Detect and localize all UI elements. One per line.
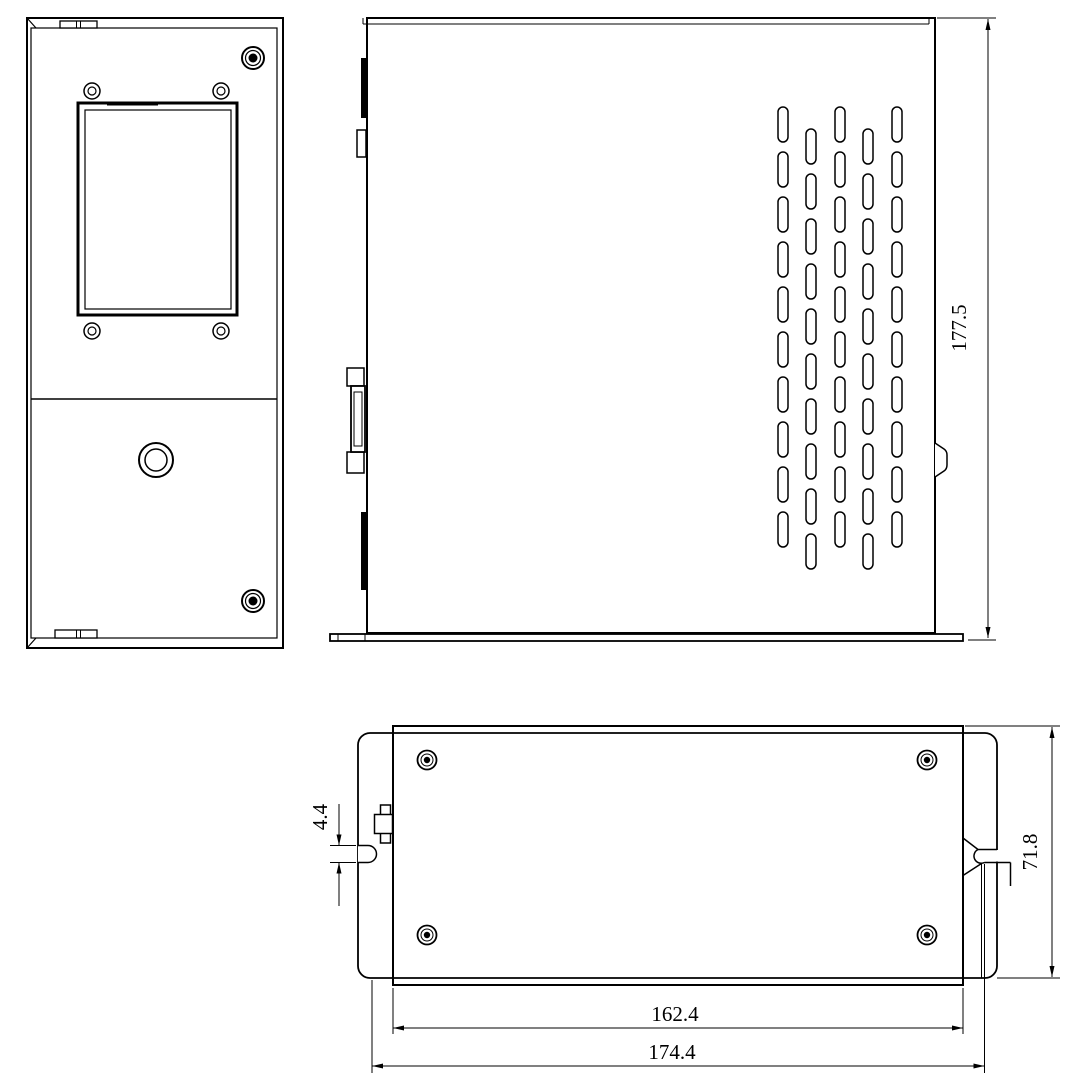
base-screw-top-left bbox=[418, 751, 437, 770]
vent-slot bbox=[863, 444, 873, 479]
din-connector-body bbox=[351, 386, 365, 452]
display-screw-bottom-left bbox=[84, 323, 100, 339]
vent-slot bbox=[863, 399, 873, 434]
vent-slot bbox=[835, 512, 845, 547]
vent-slot bbox=[892, 242, 902, 277]
vent-slot bbox=[806, 354, 816, 389]
vent-slot bbox=[806, 129, 816, 164]
drawing-canvas: 177.5 71.8 4.4 162.4 bbox=[0, 0, 1080, 1087]
vent-slot bbox=[835, 152, 845, 187]
dim-overall-width-label: 174.4 bbox=[648, 1040, 696, 1064]
panel-screw-bottom-right bbox=[242, 590, 264, 612]
vent-slot bbox=[892, 422, 902, 457]
vent-slot bbox=[863, 354, 873, 389]
display-screw-top-left bbox=[84, 83, 100, 99]
display-screw-bottom-right bbox=[213, 323, 229, 339]
vent-slot bbox=[778, 377, 788, 412]
side-body-outline bbox=[367, 18, 935, 633]
vent-slot bbox=[835, 287, 845, 322]
vent-slot bbox=[892, 377, 902, 412]
vent-slot bbox=[835, 107, 845, 142]
side-left-rib-top bbox=[361, 58, 366, 118]
vent-slot bbox=[863, 129, 873, 164]
dim-side-height-label: 177.5 bbox=[947, 304, 971, 351]
bottom-view bbox=[358, 726, 1011, 985]
vent-slot bbox=[835, 332, 845, 367]
vent-slot bbox=[778, 242, 788, 277]
dim-overall-width: 174.4 bbox=[372, 864, 985, 1073]
base-screw-bottom-left bbox=[418, 926, 437, 945]
vent-slot bbox=[863, 174, 873, 209]
vent-slot bbox=[892, 197, 902, 232]
display-screw-top-right bbox=[213, 83, 229, 99]
bottom-connector bbox=[375, 805, 393, 843]
vent-slot bbox=[778, 467, 788, 502]
dim-body-width: 162.4 bbox=[393, 988, 963, 1034]
dim-slot-height-label: 4.4 bbox=[308, 803, 332, 830]
vent-slot bbox=[835, 242, 845, 277]
vent-slot bbox=[806, 174, 816, 209]
vent-slot bbox=[835, 467, 845, 502]
base-screw-top-right bbox=[918, 751, 937, 770]
front-bottom-hinge bbox=[55, 630, 97, 638]
front-top-hinge bbox=[60, 21, 97, 28]
dim-side-height: 177.5 bbox=[937, 18, 996, 640]
vent-slot bbox=[892, 332, 902, 367]
vent-slot bbox=[863, 489, 873, 524]
dimensions: 177.5 71.8 4.4 162.4 bbox=[308, 18, 1060, 1073]
vent-slot bbox=[778, 197, 788, 232]
vent-slot bbox=[892, 512, 902, 547]
mounting-flange-outline bbox=[358, 733, 997, 978]
panel-screw-top-right bbox=[242, 47, 264, 69]
front-outer-outline bbox=[27, 18, 283, 648]
vent-slot bbox=[892, 467, 902, 502]
dim-flange-height: 71.8 bbox=[965, 726, 1060, 978]
vent-slot bbox=[806, 309, 816, 344]
vent-slot bbox=[806, 444, 816, 479]
vent-slot bbox=[863, 534, 873, 569]
vent-slot bbox=[778, 107, 788, 142]
connector-mount-tab-top bbox=[347, 368, 364, 386]
vent-slot bbox=[892, 152, 902, 187]
base-screw-bottom-right bbox=[918, 926, 937, 945]
side-left-rib-bottom bbox=[361, 512, 366, 590]
power-knob bbox=[139, 443, 173, 477]
vent-slot bbox=[778, 287, 788, 322]
dim-body-width-label: 162.4 bbox=[651, 1002, 699, 1026]
vent-slot bbox=[778, 152, 788, 187]
vent-slot bbox=[806, 264, 816, 299]
vent-slot bbox=[806, 219, 816, 254]
vent-slot bbox=[778, 332, 788, 367]
connector-mount-tab-bottom bbox=[347, 452, 364, 473]
front-inner-outline bbox=[31, 28, 277, 638]
front-corner-chamfer-bottom bbox=[27, 638, 36, 648]
side-left-switch bbox=[357, 130, 366, 157]
side-bottom-flange bbox=[330, 634, 963, 641]
side-latch-bump bbox=[935, 443, 947, 477]
vent-slot bbox=[863, 264, 873, 299]
vent-slot bbox=[806, 534, 816, 569]
vent-slot bbox=[863, 309, 873, 344]
side-view bbox=[330, 18, 963, 641]
mounting-slot-right bbox=[963, 838, 1011, 978]
dim-slot-height: 4.4 bbox=[308, 803, 356, 906]
vent-slot bbox=[863, 219, 873, 254]
vent-slot bbox=[806, 399, 816, 434]
vent-slot bbox=[835, 377, 845, 412]
front-corner-chamfer-top bbox=[27, 18, 36, 28]
engineering-drawing: 177.5 71.8 4.4 162.4 bbox=[0, 0, 1080, 1087]
vent-slot bbox=[778, 422, 788, 457]
vent-slot bbox=[892, 287, 902, 322]
vent-slot bbox=[835, 422, 845, 457]
vent-slot bbox=[778, 512, 788, 547]
vent-slot bbox=[835, 197, 845, 232]
bottom-body-outline bbox=[393, 726, 963, 985]
vent-slot bbox=[892, 107, 902, 142]
vent-slots bbox=[778, 107, 902, 569]
front-view bbox=[27, 18, 283, 648]
vent-slot bbox=[806, 489, 816, 524]
mounting-slot-left bbox=[358, 846, 377, 863]
display-cutout bbox=[78, 103, 237, 315]
dim-flange-height-label: 71.8 bbox=[1018, 834, 1042, 871]
